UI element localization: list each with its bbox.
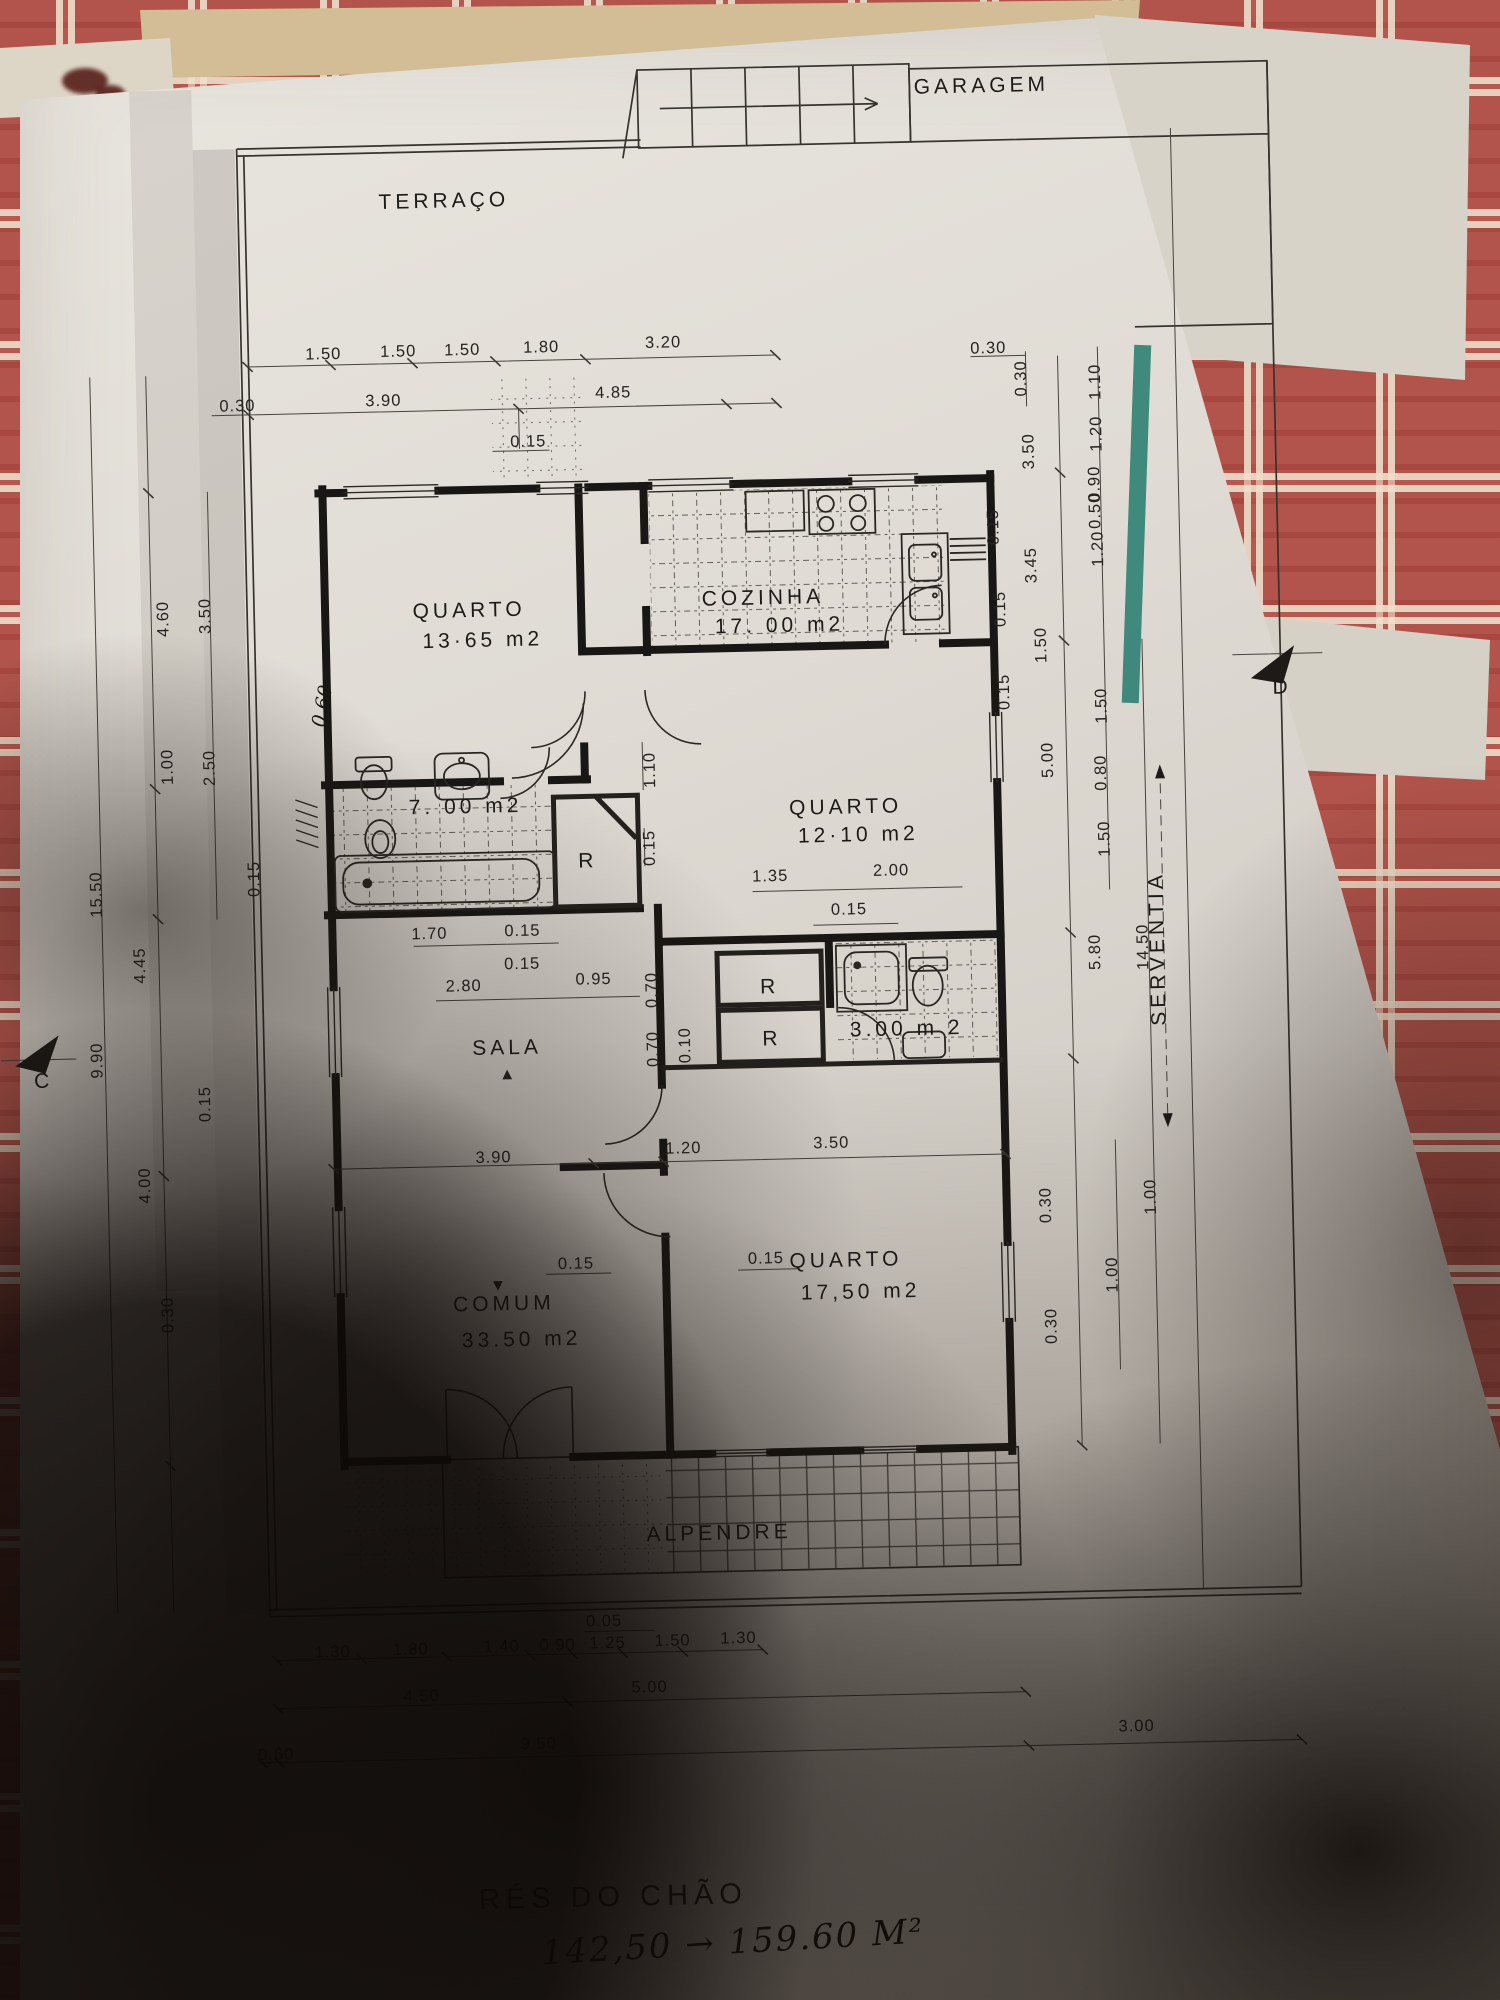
dimension-label: 9.90 — [88, 1042, 107, 1079]
dimension-label: 0.30 — [159, 1297, 178, 1334]
arrow-mark: ▼ — [490, 1276, 508, 1294]
closet-label: R — [760, 975, 780, 998]
dimension-label: 0.50 — [1086, 493, 1105, 530]
dimension-label: 1.10 — [1086, 363, 1105, 400]
dimension-label: 0.30 — [1012, 360, 1031, 397]
dimension-label: 0.15 — [984, 509, 1003, 546]
section-marker-d: D — [1272, 675, 1292, 698]
dimension-label: 15.50 — [87, 871, 106, 918]
dimension-label: 1.10 — [640, 752, 659, 789]
room-label-quarto3: QUARTO — [789, 1247, 903, 1273]
dimension-label: 0.70 — [642, 972, 661, 1009]
dimension-label: 1.40 — [483, 1637, 520, 1656]
dimension-label: 0.60 — [308, 683, 337, 729]
room-label-quarto2: QUARTO — [789, 794, 903, 820]
dimension-label: 4.00 — [136, 1167, 155, 1204]
dimension-label: 2.50 — [200, 750, 219, 787]
dimension-label: 1.50 — [1032, 627, 1051, 664]
dimension-label: 1.50 — [1095, 820, 1114, 857]
photo-scene: GARAGEM RÉS DO CHÃO 142,50 → 159.60 M² T… — [0, 0, 1500, 2000]
room-label-terraco: TERRAÇO — [378, 188, 509, 214]
area-label-banho: 7. 00 m2 — [408, 794, 522, 820]
room-label-garagem: GARAGEM — [913, 73, 1049, 99]
closet-label: R — [762, 1027, 782, 1050]
dimension-label: 1.50 — [305, 345, 342, 364]
dimension-label: 3.45 — [1022, 547, 1041, 584]
dimension-label: 0.15 — [245, 861, 264, 898]
dimension-label: 5.00 — [631, 1678, 668, 1697]
dimension-label: 1.80 — [523, 338, 560, 357]
dimension-label: 0.10 — [676, 1027, 695, 1064]
dimension-label: 1.20 — [1087, 415, 1106, 452]
area-label-wc: 3.00 m 2 — [850, 1016, 964, 1042]
dimension-label: 3.50 — [813, 1134, 850, 1153]
dimension-label: 0.15 — [831, 900, 868, 919]
floorplan-drawing: GARAGEM RÉS DO CHÃO 142,50 → 159.60 M² T… — [0, 0, 1500, 2000]
area-label-quarto2: 12·10 m2 — [798, 822, 919, 848]
floor-title: RÉS DO CHÃO — [478, 1876, 748, 1916]
dimension-label: 3.90 — [365, 391, 402, 410]
room-label-sala: SALA — [472, 1035, 542, 1060]
dimension-label: 0.05 — [586, 1612, 623, 1631]
dimension-label: 1.50 — [380, 342, 417, 361]
dimension-label: 0.30 — [1042, 1308, 1061, 1345]
area-label-quarto1: 13·65 m2 — [422, 627, 543, 653]
room-label-alpendre: ALPENDRE — [646, 1520, 792, 1546]
dimension-label: 0.15 — [196, 1086, 215, 1123]
dimension-label: 3.00 — [1118, 1717, 1155, 1736]
dimension-label: 1.20 — [1088, 530, 1107, 567]
room-label-quarto1: QUARTO — [412, 598, 526, 624]
dimension-label: 1.25 — [589, 1634, 626, 1653]
section-marker-c: C — [34, 1070, 54, 1093]
dimension-label: 1.80 — [392, 1640, 429, 1659]
dimension-label: 0.15 — [504, 921, 541, 940]
room-label-cozinha: COZINHA — [701, 585, 824, 611]
arrow-mark: ▲ — [499, 1065, 517, 1083]
dimension-label: 1.20 — [665, 1139, 702, 1158]
dimension-label: 0.30 — [1036, 1187, 1055, 1224]
dimension-label: 0.80 — [1092, 754, 1111, 791]
dimension-label: 5.00 — [1038, 742, 1057, 779]
dimension-label: 1.70 — [411, 925, 448, 944]
dimension-label: 0.95 — [575, 970, 612, 989]
dimension-label: 3.20 — [645, 333, 682, 352]
dimension-label: 3.90 — [475, 1148, 512, 1167]
dimension-label: 0.30 — [219, 397, 256, 416]
dimension-label: 5.80 — [1086, 934, 1105, 971]
dimension-label: 0.15 — [991, 591, 1010, 628]
area-label-quarto3: 17,50 m2 — [801, 1279, 921, 1305]
dimension-label: 0.15 — [748, 1249, 785, 1268]
dimension-label: 1.50 — [1092, 687, 1111, 724]
dimension-label: 1.00 — [1141, 1178, 1160, 1215]
dimension-label: 3.50 — [1019, 433, 1038, 470]
dimension-label: 4.45 — [131, 947, 150, 984]
dimension-label: 1.50 — [654, 1631, 691, 1650]
dimension-label: 1.30 — [720, 1629, 757, 1648]
dimension-label: 0.70 — [644, 1031, 663, 1068]
dimension-label: 0.60 — [258, 1745, 295, 1764]
dimension-label: 1.50 — [444, 341, 481, 360]
handwritten-note: 142,50 → 159.60 M² — [541, 1911, 926, 1973]
dimension-label: 9.50 — [521, 1734, 558, 1753]
dimension-label: 1.00 — [158, 749, 177, 786]
dimension-label: 0.15 — [558, 1254, 595, 1273]
dimension-label: 0.15 — [995, 674, 1014, 711]
dimension-label: 0.15 — [510, 432, 547, 451]
dimension-label: 1.35 — [752, 867, 789, 886]
dimension-label: 0.15 — [640, 830, 659, 867]
dimension-label: 2.80 — [445, 977, 482, 996]
closet-label: R — [578, 849, 598, 872]
area-label-cozinha: 17. 00 m2 — [715, 612, 845, 638]
dimension-label: 4.50 — [403, 1687, 440, 1706]
dimension-label: 2.00 — [873, 861, 910, 880]
dimension-label: 1.00 — [1103, 1256, 1122, 1293]
dimension-label: 0.30 — [970, 339, 1007, 358]
dimension-label: 3.50 — [196, 598, 215, 635]
area-label-comum: 33.50 m2 — [462, 1327, 582, 1353]
dimension-label: 0.15 — [504, 954, 541, 973]
dimension-label: 1.30 — [314, 1643, 351, 1662]
dimension-label: 14.50 — [1133, 923, 1152, 970]
dimension-label: 4.60 — [154, 601, 173, 638]
dimension-label: 4.85 — [595, 383, 632, 402]
room-label-comum: COMUM — [453, 1291, 555, 1316]
dimension-label: 0.90 — [539, 1636, 576, 1655]
